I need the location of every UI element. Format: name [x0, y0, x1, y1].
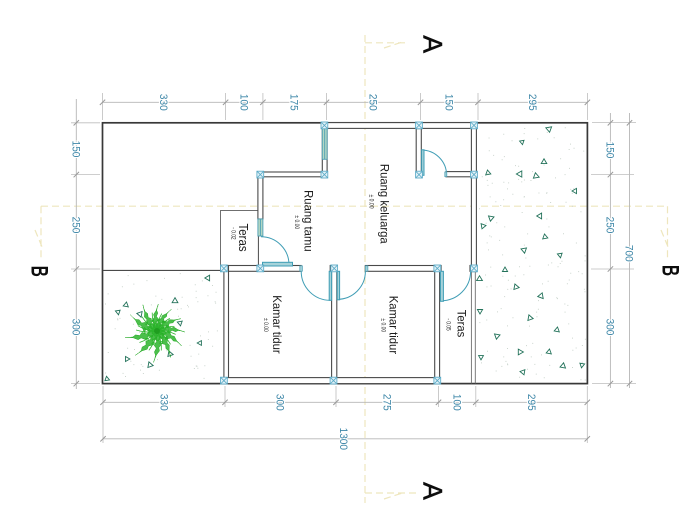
svg-text:700: 700	[623, 245, 634, 262]
svg-text:Ruang tamu: Ruang tamu	[301, 190, 316, 252]
svg-text:± 0.00: ± 0.00	[262, 318, 269, 332]
svg-text:150: 150	[442, 94, 453, 111]
svg-text:1300: 1300	[337, 428, 348, 451]
svg-text:150: 150	[69, 141, 80, 158]
svg-text:B: B	[657, 265, 683, 276]
svg-text:300: 300	[69, 319, 80, 336]
svg-text:275: 275	[380, 394, 391, 411]
svg-text:Teras: Teras	[236, 224, 251, 252]
svg-text:295: 295	[526, 94, 537, 111]
svg-text:- 0.02: - 0.02	[229, 227, 236, 239]
svg-text:± 0.00: ± 0.00	[379, 318, 386, 332]
svg-text:± 0.00: ± 0.00	[293, 215, 300, 229]
svg-text:A: A	[417, 35, 447, 53]
svg-text:Kamar tidur: Kamar tidur	[387, 296, 402, 354]
svg-text:250: 250	[604, 217, 615, 234]
svg-text:B: B	[25, 266, 51, 277]
svg-text:250: 250	[367, 94, 378, 111]
svg-text:- 0.05: - 0.05	[444, 318, 451, 330]
svg-text:Teras: Teras	[454, 310, 469, 338]
svg-text:300: 300	[604, 319, 615, 336]
svg-text:± 0.00: ± 0.00	[367, 194, 374, 208]
svg-text:330: 330	[157, 94, 168, 111]
svg-text:100: 100	[450, 394, 461, 411]
svg-text:330: 330	[157, 394, 168, 411]
svg-text:100: 100	[237, 94, 248, 111]
svg-text:Kamar tidur: Kamar tidur	[270, 295, 285, 353]
svg-text:175: 175	[288, 94, 299, 111]
svg-text:A: A	[417, 482, 447, 500]
svg-text:300: 300	[274, 394, 285, 411]
svg-text:295: 295	[525, 394, 536, 411]
svg-text:250: 250	[69, 217, 80, 234]
svg-text:150: 150	[604, 142, 615, 159]
svg-text:Ruang keluarga: Ruang keluarga	[377, 164, 392, 244]
